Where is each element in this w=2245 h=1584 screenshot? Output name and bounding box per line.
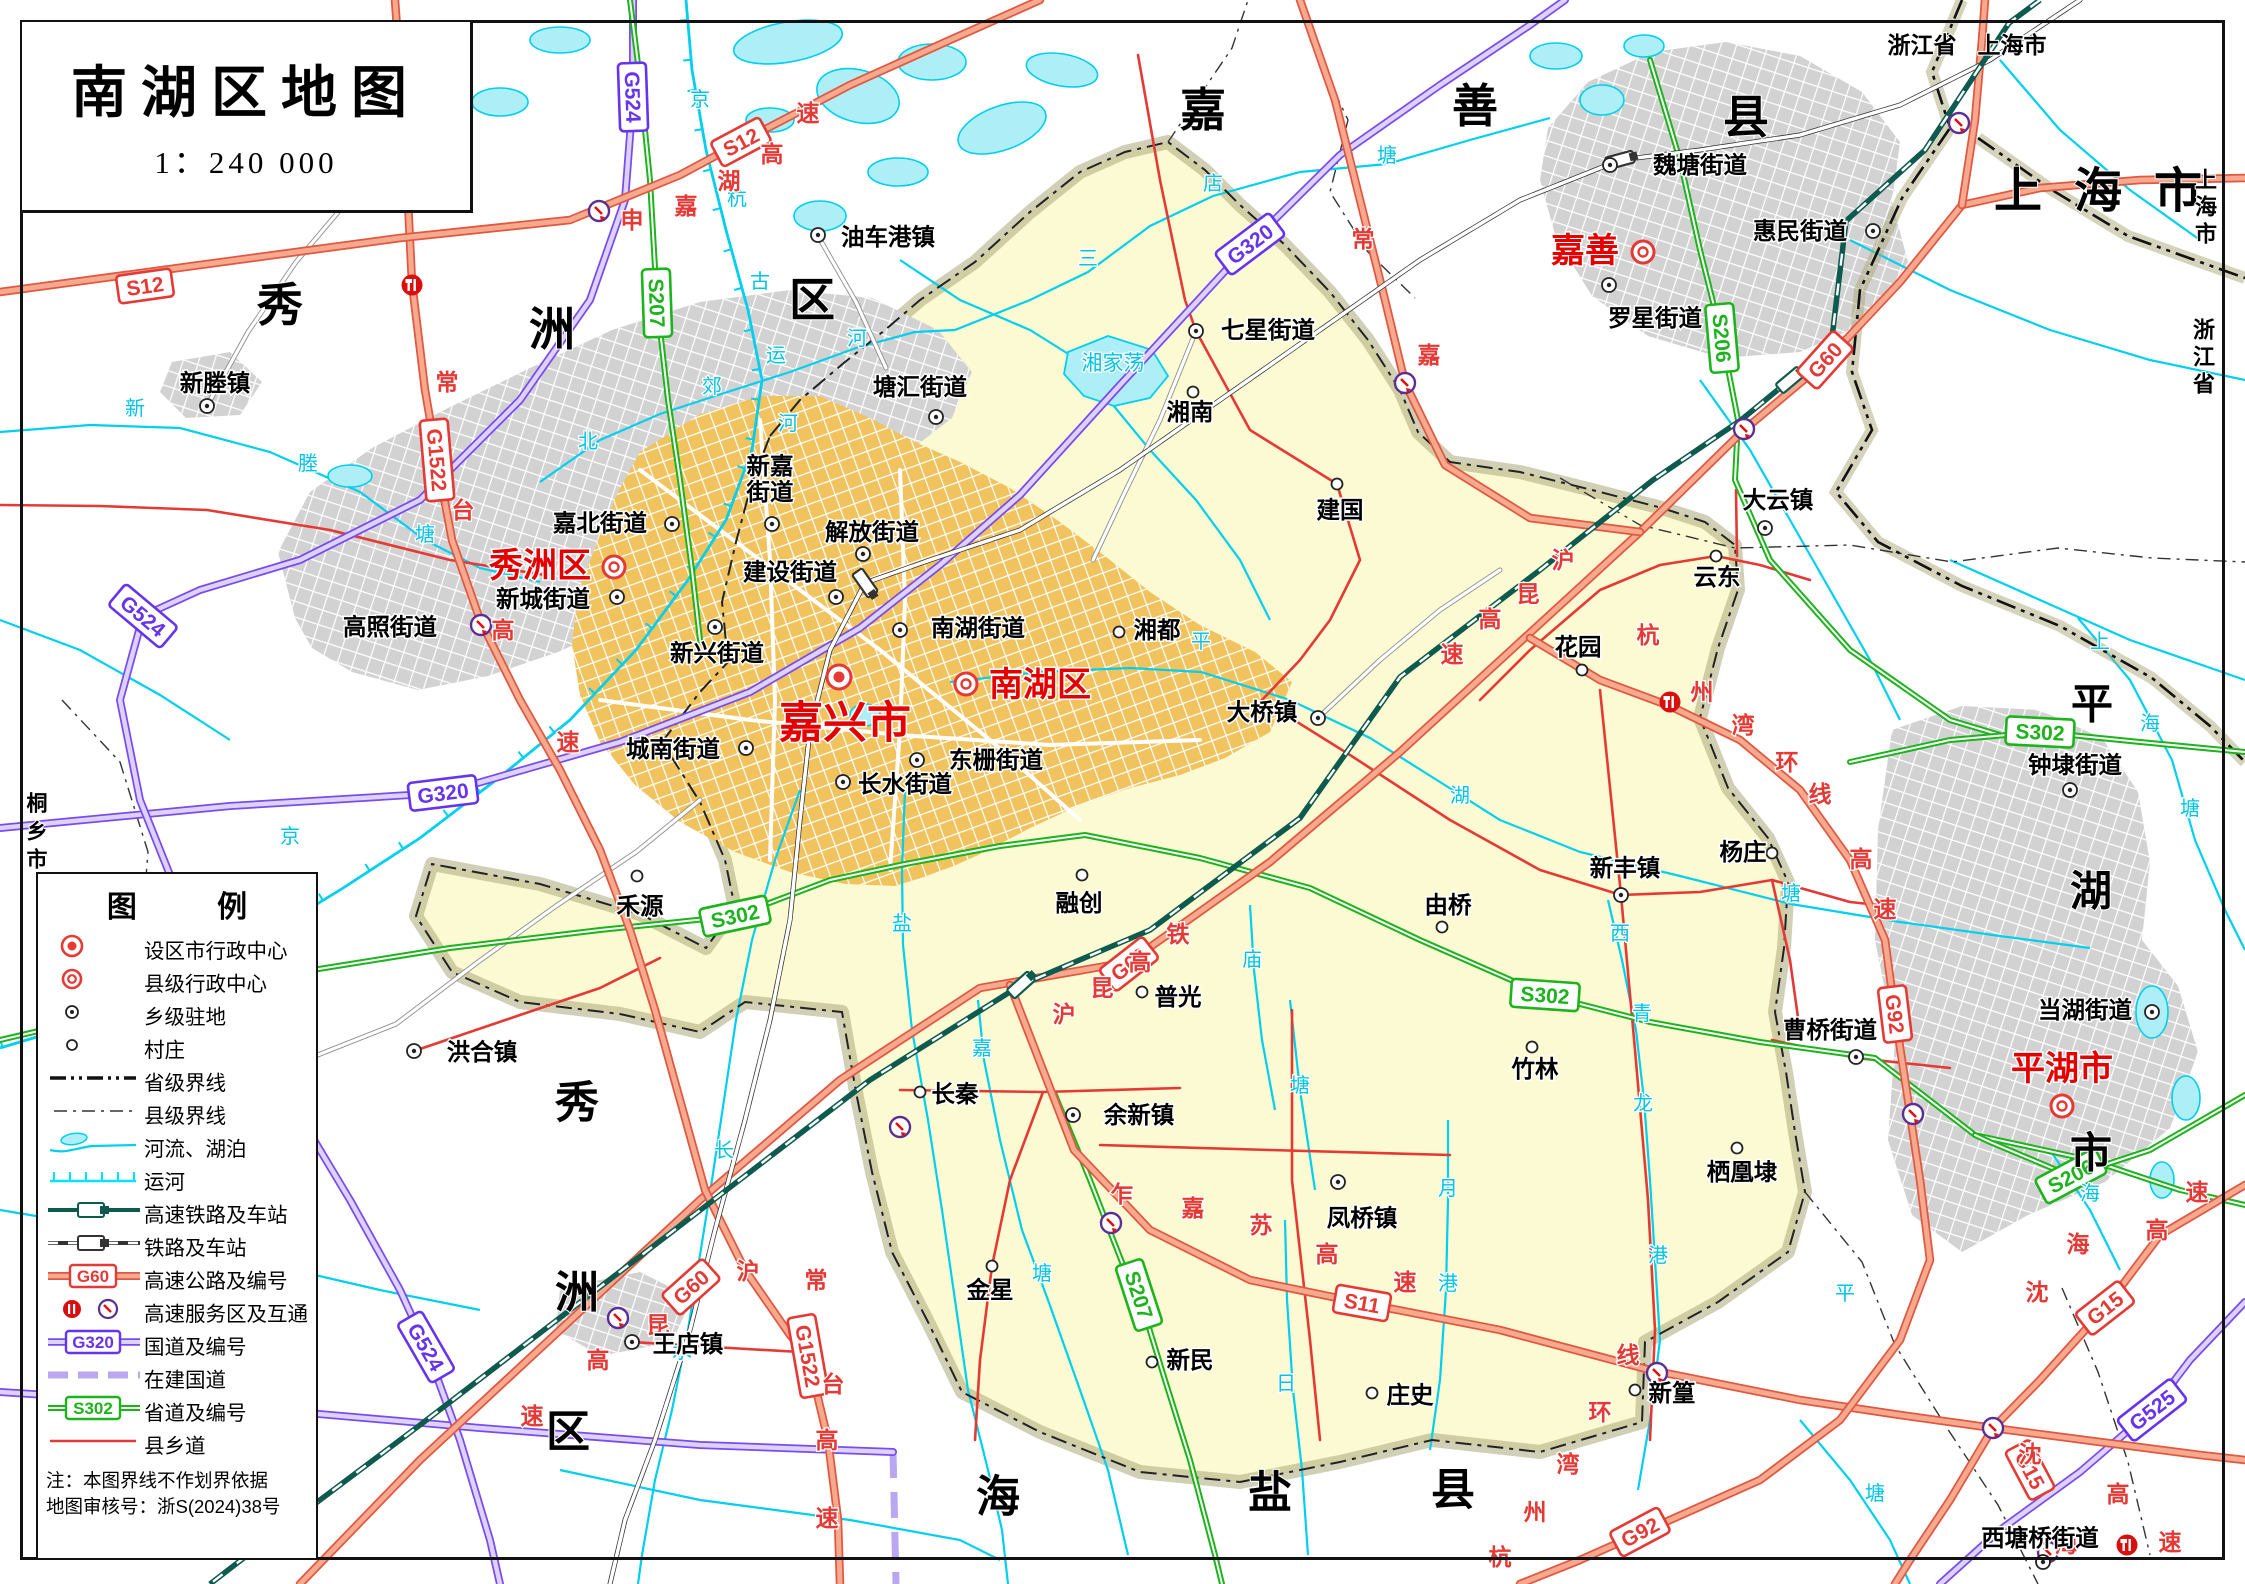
lake xyxy=(530,27,590,53)
svg-text:G92: G92 xyxy=(1880,993,1908,1035)
legend-item-label: 县乡道 xyxy=(144,1429,206,1459)
river-label: 塘 xyxy=(1865,1482,1885,1505)
town-label: 云东 xyxy=(1694,563,1741,590)
legend-symbol-canal xyxy=(46,1163,144,1196)
svg-text:S302: S302 xyxy=(1520,983,1571,1009)
river xyxy=(1800,1420,1910,1584)
service-area-icon xyxy=(2117,1535,2138,1556)
region-label: 湖 xyxy=(2070,868,2112,915)
river-label: 郊 xyxy=(702,375,722,398)
legend-symbol-city xyxy=(46,932,144,965)
town-label: 东栅街道 xyxy=(949,746,1043,773)
legend-symbol-township xyxy=(46,998,144,1031)
legend-item-label: 高速铁路及车站 xyxy=(144,1198,288,1228)
town-label: 西塘桥街道 xyxy=(1981,1524,2099,1551)
region-label: 浙江省 xyxy=(1888,32,1957,58)
highway-name-label: 嘉 xyxy=(1418,342,1441,368)
road-badge: S12 xyxy=(116,268,174,303)
region-label: 洲 xyxy=(555,1268,599,1317)
highway-name-label: 线 xyxy=(1617,1342,1640,1368)
legend-item: 乡级驻地 xyxy=(46,998,308,1031)
lake xyxy=(1624,35,1664,57)
highway-name-label: 湾 xyxy=(1557,1451,1580,1477)
map-canvas: S12S12G1522G1522G524G524G524S207S207G320… xyxy=(0,0,2245,1584)
region-label: 善 xyxy=(1452,80,1498,132)
city-label: 南湖区 xyxy=(989,666,1091,704)
highway-name-label: 速 xyxy=(1394,1269,1417,1295)
highway-name-label: 环 xyxy=(1776,749,1799,775)
legend-item-label: 省道及编号 xyxy=(144,1396,247,1426)
legend-item: 县级行政中心 xyxy=(46,965,308,998)
region-label: 县 xyxy=(1431,1465,1475,1514)
road-badge: G92 xyxy=(1609,1507,1671,1558)
town-label: 解放街道 xyxy=(825,518,919,545)
legend-item: 村庄 xyxy=(46,1031,308,1064)
river-label: 港 xyxy=(1438,1272,1458,1295)
river-label: 北 xyxy=(578,430,598,453)
road-badge: S302 xyxy=(2005,716,2074,748)
town-label: 七星街道 xyxy=(1221,316,1315,343)
highway-name-label: 沈 xyxy=(2026,1279,2049,1305)
interchange-icon xyxy=(589,201,609,221)
legend-item-label: 县级行政中心 xyxy=(144,967,267,997)
region-label: 平 xyxy=(2071,681,2113,728)
region-label: 秀 xyxy=(554,1078,599,1127)
highway-name-label: 铁 xyxy=(1167,921,1190,947)
town-label: 栖凰埭 xyxy=(1707,1159,1778,1185)
highway-name-label: 速 xyxy=(1874,896,1897,922)
highway-name-label: 线 xyxy=(1809,781,1832,807)
region-label: 市 xyxy=(2070,1130,2112,1177)
service-area-icon xyxy=(402,275,423,296)
river-label: 嘉 xyxy=(972,1037,992,1060)
river-label: 庙 xyxy=(1242,948,1262,971)
town-label: 城南街道 xyxy=(626,735,720,762)
road-badge: G525 xyxy=(2117,1378,2188,1442)
highway-name-label: 速 xyxy=(797,100,820,126)
title-box: 南湖区地图 1：240 000 xyxy=(22,22,473,213)
region-label: 海 xyxy=(2195,195,2217,220)
page-title: 南湖区地图 xyxy=(22,48,470,129)
legend-symbol-hwy: G60 xyxy=(46,1262,144,1295)
river-label: 塘 xyxy=(1781,882,1801,905)
river-label: 西 xyxy=(1610,923,1630,945)
region-label: 市 xyxy=(27,847,48,871)
river xyxy=(1950,560,2245,680)
river-label: 古 xyxy=(750,270,770,293)
lake xyxy=(794,201,846,231)
highway-name-label: 州 xyxy=(1691,679,1714,705)
river-label: 盐 xyxy=(892,912,912,935)
legend-item-label: 乡级驻地 xyxy=(144,1000,226,1030)
legend-item: G60高速公路及编号 xyxy=(46,1262,308,1295)
legend-symbol-constr xyxy=(46,1361,144,1394)
legend-symbol-hsr xyxy=(46,1196,144,1229)
legend-symbol-prov: S302 xyxy=(46,1394,144,1427)
highway-name-label: 高 xyxy=(2146,1217,2169,1243)
highway-name-label: 嘉 xyxy=(675,193,698,219)
town: 禾源 xyxy=(617,871,665,920)
legend-symbol-service xyxy=(46,1295,144,1328)
city-label: 平湖市 xyxy=(2011,1049,2113,1088)
highway-name-label: 高 xyxy=(1479,606,1502,632)
river-label: 三 xyxy=(1078,248,1098,270)
town-label: 杨庄 xyxy=(1720,838,1767,865)
map-sheet: S12S12G1522G1522G524G524G524S207S207G320… xyxy=(0,0,2245,1584)
town-label: 禾源 xyxy=(617,893,665,919)
interchange-icon xyxy=(890,1117,910,1137)
town-label: 余新镇 xyxy=(1103,1101,1175,1128)
highway-name-label: 州 xyxy=(1524,1499,1547,1525)
region-label: 上 xyxy=(1994,165,2042,218)
highway-name-label: 湾 xyxy=(1732,712,1755,738)
svg-text:G524: G524 xyxy=(620,71,645,123)
lake xyxy=(2172,1076,2200,1120)
interchange-icon xyxy=(471,615,491,635)
river-label: 新 xyxy=(125,397,145,420)
river xyxy=(0,620,230,740)
town: 曹桥街道 xyxy=(1783,1016,1877,1064)
river-label: 塘 xyxy=(415,523,435,546)
town-label: 钟埭街道 xyxy=(2028,751,2123,778)
legend-item: 运河 xyxy=(46,1163,308,1196)
town-label: 新塍镇 xyxy=(180,369,251,396)
highway-name-label: 申 xyxy=(621,207,644,233)
interchange-icon xyxy=(1734,419,1754,439)
river-label: 龙 xyxy=(1633,1092,1653,1115)
svg-text:G320: G320 xyxy=(72,1333,114,1352)
legend-item: 省级界线 xyxy=(46,1064,308,1097)
town-label: 凤桥镇 xyxy=(1327,1205,1398,1231)
river-label: 上 xyxy=(2090,630,2110,653)
highway-name-label: 乍 xyxy=(1111,1181,1134,1207)
highway-name-label: 高 xyxy=(816,1427,839,1453)
highway-name-label: 沈 xyxy=(2019,1441,2042,1467)
highway-name-label: 杭 xyxy=(1637,622,1660,648)
map-scale: 1：240 000 xyxy=(22,137,470,182)
road-badge: S207 xyxy=(642,269,672,338)
road-badge: G524 xyxy=(397,1311,455,1384)
town-label: 大桥镇 xyxy=(1227,699,1298,725)
note-line-1: 注：本图界线不作划界依据 xyxy=(46,1468,308,1494)
interchange-icon xyxy=(1949,113,1969,133)
highway-name-label: 昆 xyxy=(1091,975,1114,1001)
town-label: 嘉北街道 xyxy=(553,509,647,536)
river-label: 海 xyxy=(2140,712,2160,735)
highway-name-label: 湖 xyxy=(718,168,741,194)
region-label: 洲 xyxy=(529,303,575,355)
river-label: 塘 xyxy=(1032,1262,1052,1285)
road-badge: G92 xyxy=(1878,985,1912,1043)
town: 西塘桥街道 xyxy=(1981,1524,2099,1569)
legend-symbol-nat: G320 xyxy=(46,1328,144,1361)
town-label: 融创 xyxy=(1056,890,1103,916)
legend-item: G320国道及编号 xyxy=(46,1328,308,1361)
legend-item-label: 铁路及车站 xyxy=(144,1231,247,1261)
region-label: 上 xyxy=(2195,168,2217,193)
legend-symbol-river xyxy=(46,1130,144,1163)
river-label: 京 xyxy=(690,88,710,111)
region-label: 海 xyxy=(976,1472,1020,1521)
region-label: 海 xyxy=(2074,165,2122,218)
city-label: 秀洲区 xyxy=(488,547,591,585)
legend-item-label: 村庄 xyxy=(144,1033,185,1063)
lake xyxy=(730,13,845,71)
town-label: 南湖街道 xyxy=(931,614,1025,641)
lake xyxy=(1024,48,1100,92)
town-label: 洪合镇 xyxy=(447,1038,518,1065)
river-label: 塘 xyxy=(2180,797,2200,820)
road-badge: G524 xyxy=(108,583,178,648)
river-label: 店 xyxy=(1203,172,1223,195)
town-label: 大云镇 xyxy=(1743,487,1814,513)
river-label: 平 xyxy=(1835,1283,1855,1305)
region-label: 上海市 xyxy=(1978,32,2047,58)
legend-item: 设区市行政中心 xyxy=(46,932,308,965)
town-label: 建设街道 xyxy=(743,558,837,585)
legend-notes: 注：本图界线不作划界依据 地图审核号：浙S(2024)38号 xyxy=(46,1468,308,1520)
legend-item-label: 高速公路及编号 xyxy=(144,1264,288,1294)
highway-name-label: 速 xyxy=(521,1403,544,1429)
river-label: 塘 xyxy=(1377,144,1397,167)
lake xyxy=(1530,43,1582,69)
town-label: 竹林 xyxy=(1511,1056,1560,1082)
river-label: 平 xyxy=(1191,631,1211,653)
highway-name-label: 常 xyxy=(805,1267,828,1293)
town-label: 油车港镇 xyxy=(841,223,935,250)
region-label: 浙 xyxy=(2193,318,2215,343)
lake xyxy=(328,465,372,487)
province-boundary xyxy=(1836,0,2245,762)
highway-name-label: 台 xyxy=(452,497,475,523)
highway-name-label: 昆 xyxy=(1517,581,1540,607)
town-label: 湘南 xyxy=(1167,399,1214,425)
town-label: 新篁 xyxy=(1649,1379,1696,1406)
interchange-icon xyxy=(608,1308,628,1328)
highway-name-label: 速 xyxy=(1441,641,1464,667)
highway-name-label: 海 xyxy=(2067,1231,2090,1257)
region-label: 秀 xyxy=(256,279,303,331)
highway-name-label: 高 xyxy=(761,141,784,167)
highway-name-label: 台 xyxy=(822,1371,845,1397)
legend-item: 县级界线 xyxy=(46,1097,308,1130)
svg-text:S302: S302 xyxy=(2015,720,2065,746)
interchange-icon xyxy=(1983,1418,2003,1438)
road-badge: G1522 xyxy=(420,418,455,501)
town-label: 新城街道 xyxy=(496,585,590,612)
legend-symbol-countyb xyxy=(46,1097,144,1130)
town-label: 花园 xyxy=(1555,634,1602,660)
river-label: 海 xyxy=(2080,1182,2100,1205)
town-label: 长水街道 xyxy=(858,770,952,797)
region-label: 区 xyxy=(546,1407,590,1456)
legend-box: 图 例 设区市行政中心县级行政中心乡级驻地村庄省级界线县级界线河流、湖泊运河高速… xyxy=(36,872,318,1560)
town-label: 新嘉 xyxy=(747,452,794,479)
region-label: 县 xyxy=(1723,91,1769,143)
legend-item-label: 高速服务区及互通 xyxy=(144,1297,308,1327)
region-label: 省 xyxy=(2192,372,2215,397)
legend-item-label: 县级界线 xyxy=(144,1099,226,1129)
river-label: 河 xyxy=(847,327,867,350)
svg-text:S302: S302 xyxy=(73,1399,113,1418)
river-label: 运 xyxy=(766,345,786,367)
river-label: 日 xyxy=(1276,1373,1296,1395)
town-label: 魏塘街道 xyxy=(1653,151,1747,178)
road-badge: G524 xyxy=(618,63,648,132)
river-label: 塘 xyxy=(1290,1074,1310,1097)
town-label: 塘汇街道 xyxy=(873,373,967,400)
highway-name-label: 高 xyxy=(587,1347,610,1373)
town-label: 新兴街道 xyxy=(670,639,764,666)
town-label: 曹桥街道 xyxy=(1783,1016,1877,1043)
highway-name-label: 高 xyxy=(1129,949,1152,975)
road-badge: S206 xyxy=(1705,303,1739,373)
road-badge: G15 xyxy=(2075,1280,2136,1336)
highway-name-label: 嘉 xyxy=(1182,1195,1205,1221)
legend-item-label: 运河 xyxy=(144,1165,185,1195)
town-label: 高照街道 xyxy=(343,613,437,640)
legend-symbol-countyroad xyxy=(46,1427,144,1460)
highway-name-label: 高 xyxy=(1850,846,1873,872)
town-label: 长秦 xyxy=(932,1081,980,1107)
legend-item-label: 省级界线 xyxy=(144,1066,226,1096)
river-label: 湖 xyxy=(1450,784,1470,807)
highway-name-label: 杭 xyxy=(1489,1544,1512,1570)
legend-symbol-county xyxy=(46,965,144,998)
svg-text:S207: S207 xyxy=(644,278,669,328)
service-area-icon xyxy=(1660,692,1681,713)
town-label: 由桥 xyxy=(1425,892,1473,918)
town-label: 王店镇 xyxy=(653,1331,724,1357)
highway-name-label: 高 xyxy=(1316,1241,1339,1267)
legend-item: 高速铁路及车站 xyxy=(46,1196,308,1229)
highway-name-label: 高 xyxy=(2107,1481,2130,1507)
legend-symbol-rail xyxy=(46,1229,144,1262)
highway-name-label: 常 xyxy=(1352,226,1375,252)
city-label: 嘉善 xyxy=(1551,232,1619,270)
interchange-icon xyxy=(1101,1213,1121,1233)
legend-item-label: 国道及编号 xyxy=(144,1330,247,1360)
river-label: 长 xyxy=(714,1139,734,1162)
region-label: 江 xyxy=(2193,345,2215,370)
river-label: 青 xyxy=(1632,1002,1652,1025)
lake xyxy=(951,92,1053,165)
highway-name-label: 速 xyxy=(816,1505,839,1531)
highway-name-label: 环 xyxy=(1589,1399,1612,1425)
road-badge: S302 xyxy=(1510,979,1580,1012)
town-label: 当湖街道 xyxy=(2038,996,2133,1023)
region-label: 区 xyxy=(789,274,835,326)
city-label: 嘉兴市 xyxy=(779,698,911,747)
legend-item-label: 河流、湖泊 xyxy=(144,1132,247,1162)
legend-item: 河流、湖泊 xyxy=(46,1130,308,1163)
highway-name-label: 沪 xyxy=(1552,547,1575,573)
highway-name-label: 速 xyxy=(2159,1529,2182,1555)
town-label: 罗星街道 xyxy=(1608,304,1702,331)
lake xyxy=(868,158,928,186)
town-label: 湘都 xyxy=(1134,617,1182,643)
town-label: 建国 xyxy=(1317,497,1364,523)
svg-text:G60: G60 xyxy=(77,1267,109,1286)
legend-item-label: 设区市行政中心 xyxy=(144,934,288,964)
legend-item: S302省道及编号 xyxy=(46,1394,308,1427)
highway-name-label: 苏 xyxy=(1250,1212,1273,1238)
town: 洪合镇 xyxy=(407,1038,517,1065)
town-label: 街道 xyxy=(746,478,795,505)
highway-name-label: 沪 xyxy=(737,1258,760,1284)
river-label: 河 xyxy=(778,412,798,435)
river-label: 月 xyxy=(1438,1178,1458,1200)
legend-item: 高速服务区及互通 xyxy=(46,1295,308,1328)
highway-name-label: 常 xyxy=(436,369,459,395)
highway-name-label: 速 xyxy=(557,729,580,755)
region-label: 桐 xyxy=(27,792,48,815)
river-label: 塍 xyxy=(298,452,318,475)
highway-name-label: 沪 xyxy=(1053,1001,1076,1027)
legend-symbol-provb xyxy=(46,1064,144,1097)
highway-name-label: 高 xyxy=(492,617,515,643)
interchange-icon xyxy=(1395,373,1415,393)
lake xyxy=(1580,85,1624,115)
river-label: 湘家荡 xyxy=(1082,352,1145,375)
highway-name-label: 速 xyxy=(2186,1179,2209,1205)
town-label: 新丰镇 xyxy=(1590,854,1661,881)
river-label: 港 xyxy=(1648,1244,1668,1267)
legend-item-label: 在建国道 xyxy=(144,1363,226,1393)
interchange-icon xyxy=(1903,1104,1923,1124)
river-label: 京 xyxy=(280,825,300,848)
region-label: 乡 xyxy=(27,820,48,843)
note-line-2: 地图审核号：浙S(2024)38号 xyxy=(46,1494,308,1520)
legend-symbol-village xyxy=(46,1031,144,1064)
svg-text:S206: S206 xyxy=(1707,313,1734,364)
region-label: 市 xyxy=(2195,222,2217,247)
town-label: 庄史 xyxy=(1387,1381,1435,1408)
legend-item: 铁路及车站 xyxy=(46,1229,308,1262)
town: 高照街道 xyxy=(343,613,437,640)
region-label: 嘉 xyxy=(1180,84,1226,136)
town-label: 普光 xyxy=(1155,983,1202,1010)
region-label: 盐 xyxy=(1248,1468,1292,1517)
legend-title: 图 例 xyxy=(46,882,308,926)
town-label: 新民 xyxy=(1167,1346,1214,1373)
town-label: 惠民街道 xyxy=(1753,217,1847,244)
legend-rows: 设区市行政中心县级行政中心乡级驻地村庄省级界线县级界线河流、湖泊运河高速铁路及车… xyxy=(46,932,308,1460)
lake xyxy=(472,88,528,116)
legend-item: 县乡道 xyxy=(46,1427,308,1460)
legend-item: 在建国道 xyxy=(46,1361,308,1394)
town-label: 金星 xyxy=(966,1276,1014,1303)
road-badge: G320 xyxy=(408,775,479,811)
